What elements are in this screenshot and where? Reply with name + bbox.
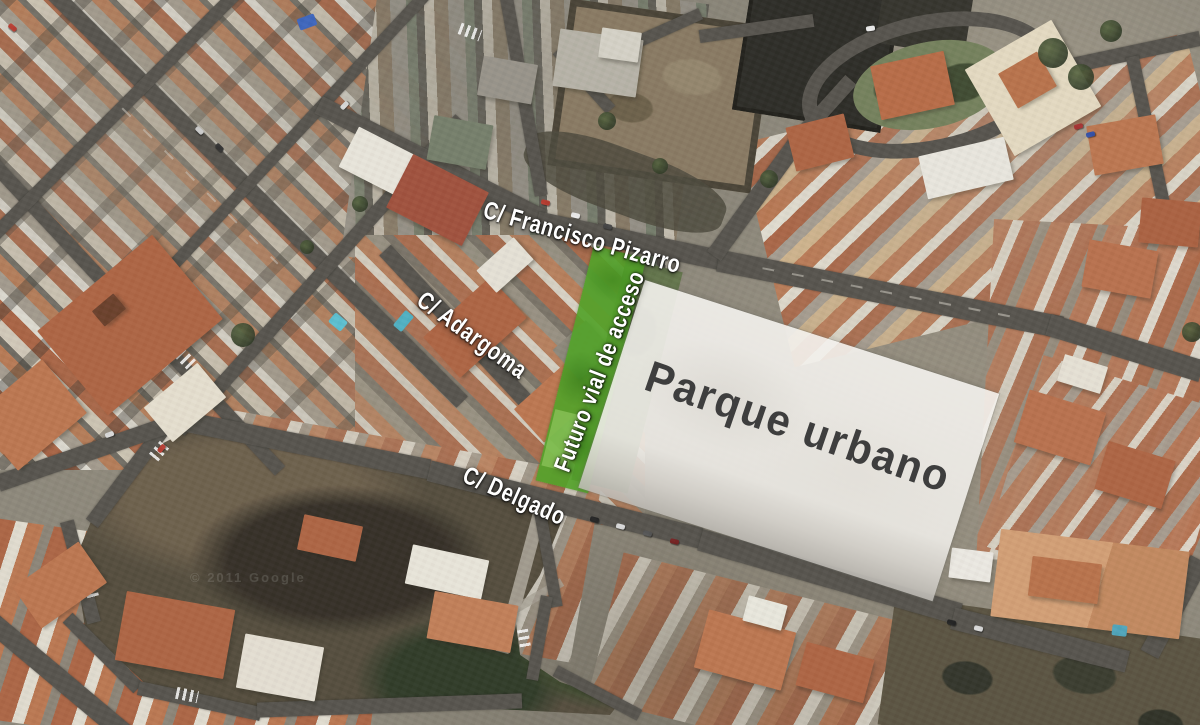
tree <box>352 196 368 212</box>
swimming-pool <box>1111 624 1127 637</box>
tree <box>300 240 314 254</box>
tree <box>760 170 778 188</box>
building <box>1138 197 1200 247</box>
tree <box>1068 64 1094 90</box>
tree <box>652 158 668 174</box>
watermark: © 2011 Google <box>190 570 306 585</box>
building <box>1028 556 1102 604</box>
tree <box>1100 20 1122 42</box>
car <box>670 538 680 545</box>
building <box>598 27 642 62</box>
car <box>616 523 626 530</box>
car <box>643 530 653 537</box>
annotated-satellite-map: © 2011 Google C/ Francisco Pizarro C/ Ad… <box>0 0 1200 725</box>
tree <box>1182 322 1200 342</box>
building <box>948 548 993 583</box>
tree <box>1038 38 1068 68</box>
tree <box>598 112 616 130</box>
tree <box>231 323 255 347</box>
